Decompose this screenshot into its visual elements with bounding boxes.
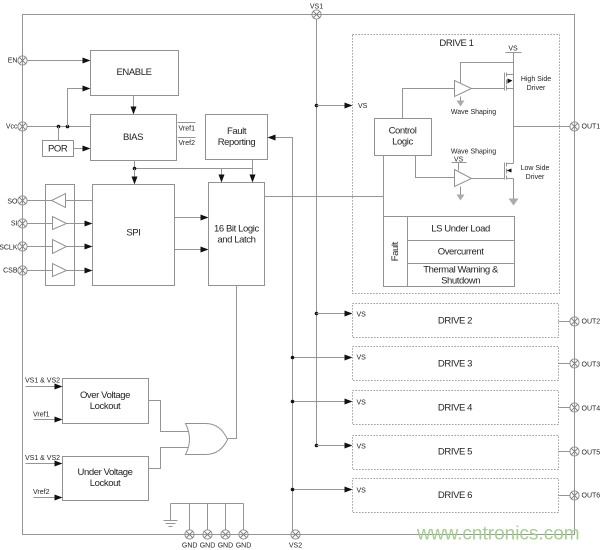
svg-text:VS: VS (357, 312, 367, 319)
svg-text:GND: GND (218, 543, 234, 550)
svg-text:SCLK: SCLK (0, 245, 18, 252)
svg-text:VS2: VS2 (289, 543, 302, 550)
svg-text:LS Under Load: LS Under Load (431, 223, 490, 234)
svg-text:ENABLE: ENABLE (116, 67, 151, 78)
svg-text:Control: Control (389, 126, 417, 137)
svg-text:VS: VS (357, 444, 367, 451)
svg-text:Vref2: Vref2 (179, 140, 196, 147)
svg-text:GND: GND (182, 543, 198, 550)
svg-text:Driver: Driver (526, 174, 545, 181)
svg-text:16 Bit Logic: 16 Bit Logic (214, 224, 259, 235)
svg-text:www.cntronics.com: www.cntronics.com (416, 524, 580, 545)
svg-text:Shutdown: Shutdown (441, 275, 480, 286)
svg-text:Over Voltage: Over Voltage (80, 390, 130, 401)
svg-text:GND: GND (200, 543, 216, 550)
svg-text:OUT2: OUT2 (582, 319, 600, 326)
svg-text:Wave Shaping: Wave Shaping (451, 149, 496, 156)
svg-text:OUT6: OUT6 (582, 493, 600, 500)
svg-text:SI: SI (11, 221, 18, 228)
svg-text:Under Voltage: Under Voltage (77, 467, 132, 478)
svg-text:OUT5: OUT5 (582, 450, 600, 457)
svg-text:SO: SO (7, 199, 18, 206)
svg-text:Fault: Fault (390, 241, 401, 261)
svg-text:DRIVE 4: DRIVE 4 (438, 403, 472, 414)
svg-text:Logic: Logic (392, 137, 413, 148)
svg-text:Driver: Driver (527, 85, 546, 92)
svg-text:CSB: CSB (3, 268, 18, 275)
svg-text:Vref2: Vref2 (33, 489, 50, 496)
svg-text:Reporting: Reporting (218, 137, 256, 148)
svg-text:OUT3: OUT3 (582, 362, 600, 369)
svg-text:DRIVE 2: DRIVE 2 (438, 315, 472, 326)
svg-text:Lockout: Lockout (90, 401, 121, 412)
svg-text:OUT4: OUT4 (582, 406, 600, 413)
svg-text:Lockout: Lockout (90, 478, 121, 489)
svg-text:VS: VS (357, 355, 367, 362)
svg-text:SPI: SPI (126, 228, 140, 239)
svg-text:Overcurrent: Overcurrent (438, 247, 485, 258)
svg-text:DRIVE 5: DRIVE 5 (438, 447, 472, 458)
svg-text:High Side: High Side (521, 76, 551, 83)
svg-text:Vref1: Vref1 (33, 412, 50, 419)
svg-text:VS1: VS1 (310, 4, 323, 11)
svg-text:Thermal Warning &: Thermal Warning & (423, 264, 499, 275)
svg-text:Wave Shaping: Wave Shaping (451, 109, 496, 116)
svg-text:Vref1: Vref1 (179, 126, 196, 133)
svg-text:and Latch: and Latch (217, 235, 255, 246)
svg-text:OUT1: OUT1 (582, 124, 600, 131)
svg-text:VS: VS (358, 103, 368, 110)
svg-text:VS1 & VS2: VS1 & VS2 (25, 378, 60, 385)
svg-text:Fault: Fault (227, 126, 247, 137)
svg-text:Low Side: Low Side (521, 165, 550, 172)
svg-text:Vcc: Vcc (6, 124, 18, 131)
svg-text:VS: VS (508, 46, 518, 53)
svg-text:POR: POR (48, 144, 68, 155)
svg-text:VS: VS (357, 400, 367, 407)
svg-text:VS: VS (357, 488, 367, 495)
svg-text:DRIVE 1: DRIVE 1 (439, 38, 473, 49)
svg-text:BIAS: BIAS (123, 132, 143, 143)
svg-text:DRIVE 6: DRIVE 6 (438, 490, 472, 501)
svg-text:EN: EN (8, 58, 18, 65)
svg-text:DRIVE 3: DRIVE 3 (438, 359, 472, 370)
svg-text:GND: GND (236, 543, 252, 550)
